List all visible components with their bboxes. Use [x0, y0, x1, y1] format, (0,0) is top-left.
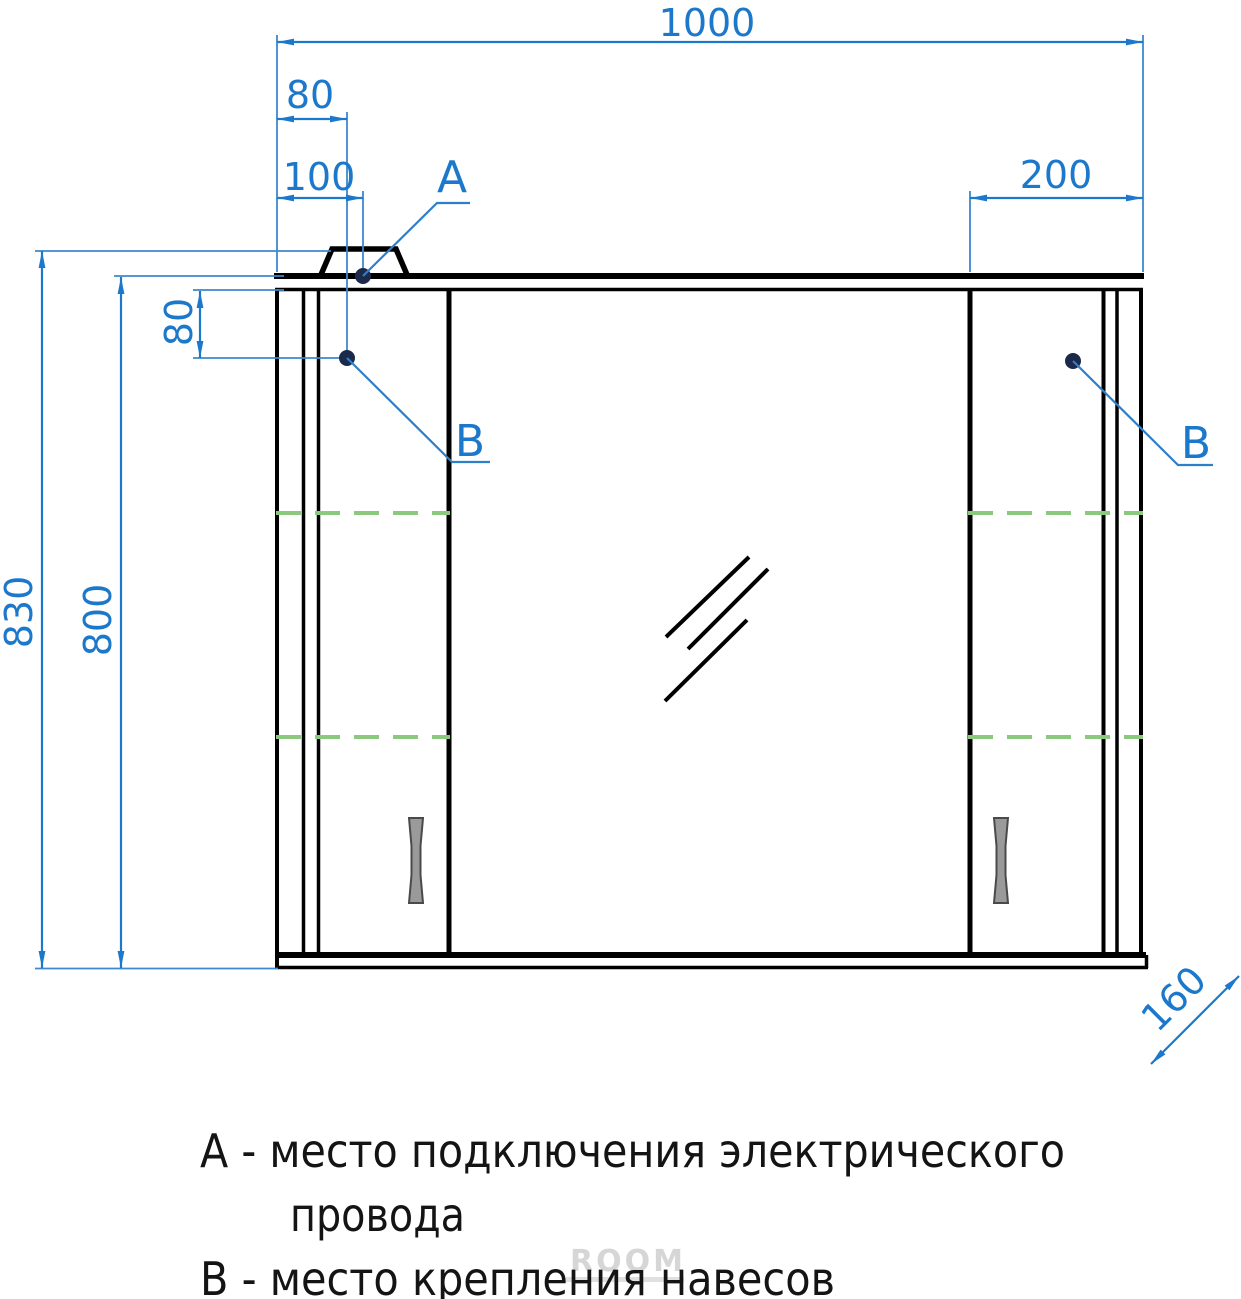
- point-b-right-label: В: [1181, 418, 1211, 469]
- dim-830-value: 830: [0, 576, 41, 649]
- dim-80-left-value: 80: [157, 298, 201, 346]
- dim-80-top-value: 80: [286, 73, 334, 117]
- right-door-handle: [994, 818, 1008, 903]
- legend-line-b: В - место крепления навесов: [200, 1252, 835, 1299]
- dim-1000-value: 1000: [659, 1, 756, 45]
- legend-line-a2: провода: [290, 1188, 465, 1242]
- mirror-hatch-1: [666, 557, 749, 637]
- dim-100-value: 100: [283, 155, 356, 199]
- legend-line-a1: А - место подключения электрического: [200, 1124, 1065, 1178]
- cabinet-technical-drawing: ROOM: [0, 0, 1241, 1299]
- point-a-label: А: [437, 152, 467, 203]
- dim-160-value: 160: [1133, 958, 1215, 1040]
- legend: А - место подключения электрического про…: [200, 1124, 1065, 1299]
- dim-800-value: 800: [76, 584, 120, 657]
- dimension-annotations: 1000 80 100 200 830 800 80 160 А В В: [0, 1, 1239, 1064]
- point-b-left-label: В: [455, 416, 485, 467]
- dim-200-value: 200: [1020, 153, 1093, 197]
- left-door-handle: [409, 818, 423, 903]
- point-a-leader: [363, 203, 470, 276]
- cabinet-body: [274, 249, 1148, 968]
